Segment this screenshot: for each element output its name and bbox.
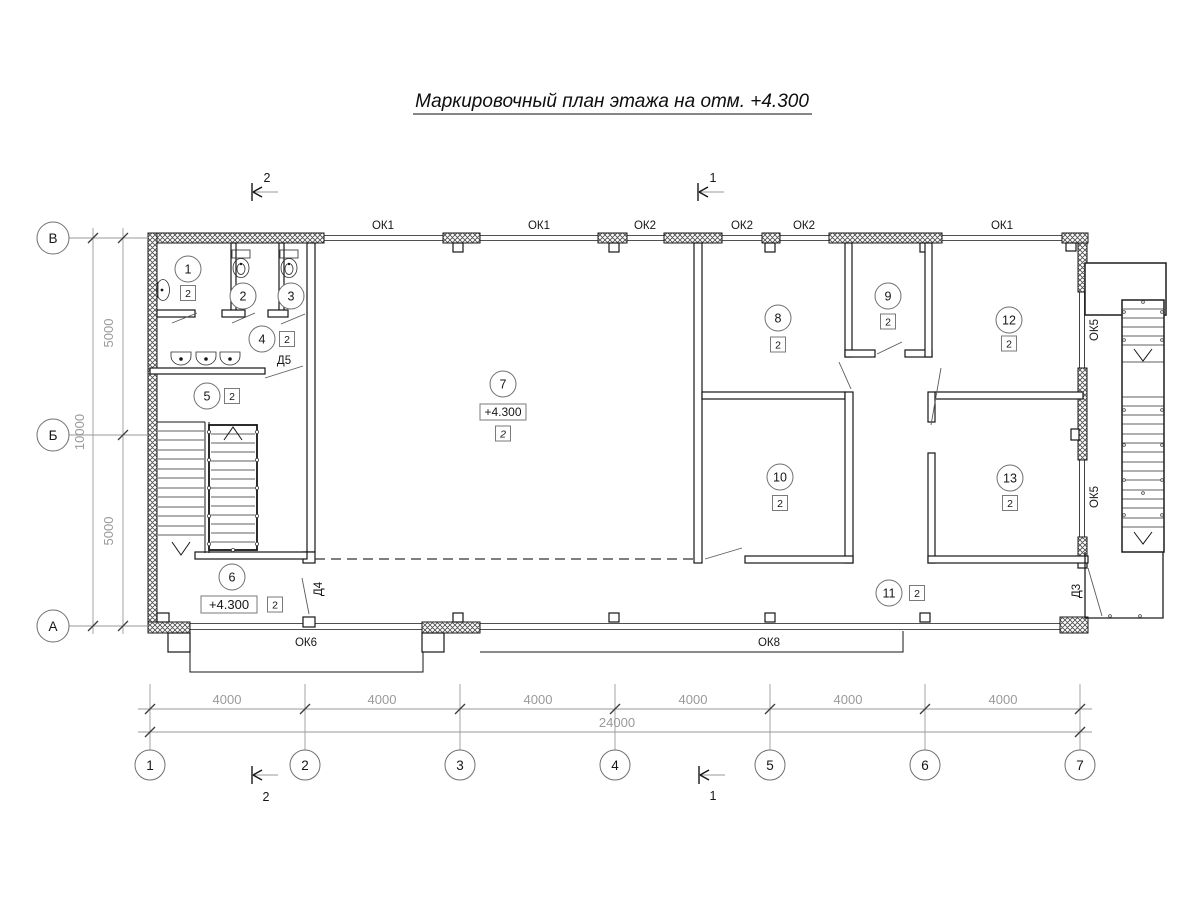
axis-label: 6 <box>921 758 929 773</box>
room-number: 10 <box>773 471 787 485</box>
room-type-badge: 2 <box>185 288 191 300</box>
dim-label: 5000 <box>101 517 116 546</box>
axis-label: 7 <box>1076 758 1084 773</box>
sink-icon <box>220 352 240 365</box>
door-mark: Д4 <box>313 581 325 596</box>
window-mark: ОК2 <box>634 220 656 232</box>
dim-label: 4000 <box>368 692 397 707</box>
page-title: Маркировочный план этажа на отм. +4.300 <box>415 91 809 112</box>
stair-down-arrow <box>172 542 190 555</box>
door-mark: Д5 <box>277 355 291 367</box>
axis-label: 5 <box>766 758 774 773</box>
porch-right <box>1085 552 1163 618</box>
dim-label: 4000 <box>679 692 708 707</box>
window-mark: ОК5 <box>1089 486 1101 508</box>
axis-label: 3 <box>456 758 464 773</box>
dim-label: 4000 <box>834 692 863 707</box>
window-mark: ОК1 <box>372 220 394 232</box>
room-type-badge: 2 <box>229 391 235 403</box>
stairwell-left <box>157 422 259 555</box>
elevation-mark: +4.300 <box>209 597 249 612</box>
axis-label: 4 <box>611 758 619 773</box>
left-dimension-system: 5000 5000 10000 В Б А <box>37 222 148 642</box>
porch-left <box>190 652 423 672</box>
sink-icon <box>171 352 191 365</box>
dim-label: 5000 <box>101 319 116 348</box>
dim-label: 4000 <box>989 692 1018 707</box>
window-glazing <box>190 236 1085 630</box>
axis-bubbles-bottom: 1 2 3 4 5 6 7 <box>135 750 1095 780</box>
porch-middle <box>480 631 903 652</box>
section-mark-2-bottom: 2 <box>252 766 278 804</box>
window-mark: ОК5 <box>1089 319 1101 341</box>
elevation-mark: +4.300 <box>484 405 521 419</box>
sink-icon <box>196 352 216 365</box>
window-mark: ОК2 <box>731 220 753 232</box>
room-number: 5 <box>204 390 211 404</box>
dim-label: 4000 <box>213 692 242 707</box>
bottom-dimension-system: 4000 4000 4000 4000 4000 4000 24000 1 2 … <box>135 684 1095 780</box>
room-number: 12 <box>1002 314 1016 328</box>
room-number: 6 <box>229 571 236 585</box>
room-number: 3 <box>288 290 295 304</box>
room-number: 7 <box>500 378 507 392</box>
axis-label: Б <box>49 428 58 443</box>
axis-label: А <box>48 619 57 634</box>
room-type-badge: 2 <box>885 317 891 329</box>
window-mark: ОК8 <box>758 637 780 649</box>
section-label: 1 <box>710 171 717 185</box>
room-number: 13 <box>1003 472 1017 486</box>
window-mark: ОК1 <box>991 220 1013 232</box>
room-type-badge: 2 <box>777 498 783 510</box>
section-label: 1 <box>710 789 717 803</box>
window-mark: ОК2 <box>793 220 815 232</box>
dimension-ticks <box>88 233 128 631</box>
section-mark-2-top: 2 <box>252 171 278 201</box>
section-mark-1-bottom: 1 <box>699 766 725 803</box>
external-stair-right <box>1085 263 1166 618</box>
axis-label: 2 <box>301 758 309 773</box>
room-type-badge: 2 <box>1007 498 1013 510</box>
section-mark-1-top: 1 <box>698 171 724 201</box>
drawing-title: Маркировочный план этажа на отм. +4.300 <box>413 91 812 114</box>
room-type-badge: 2 <box>914 588 920 600</box>
room-number: 9 <box>885 290 892 304</box>
porches-bottom <box>168 631 903 672</box>
floor-plan-svg: Маркировочный план этажа на отм. +4.300 <box>0 0 1200 900</box>
room-number: 11 <box>883 587 896 601</box>
drawing-sheet: Маркировочный план этажа на отм. +4.300 <box>0 0 1200 900</box>
room-type-badge: 2 <box>499 429 506 441</box>
section-label: 2 <box>263 790 270 804</box>
window-mark: ОК1 <box>528 220 550 232</box>
room-number: 2 <box>240 290 247 304</box>
room-number: 4 <box>259 333 266 347</box>
room-type-badge: 2 <box>272 600 278 612</box>
axis-label: 1 <box>146 758 154 773</box>
dim-total-label: 24000 <box>599 715 635 730</box>
dim-total-label: 10000 <box>72 414 87 450</box>
urinal-icon <box>157 280 170 301</box>
room-type-badge: 2 <box>775 340 781 352</box>
room-number: 1 <box>185 263 192 277</box>
room-number: 8 <box>775 312 782 326</box>
room-type-badge: 2 <box>1006 339 1012 351</box>
axis-bubbles-left: В Б А <box>37 222 69 642</box>
window-mark: ОК6 <box>295 637 317 649</box>
section-label: 2 <box>264 171 271 185</box>
room-type-badge: 2 <box>284 334 290 346</box>
axis-label: В <box>48 231 57 246</box>
dim-label: 4000 <box>524 692 553 707</box>
door-mark: Д3 <box>1071 584 1083 598</box>
